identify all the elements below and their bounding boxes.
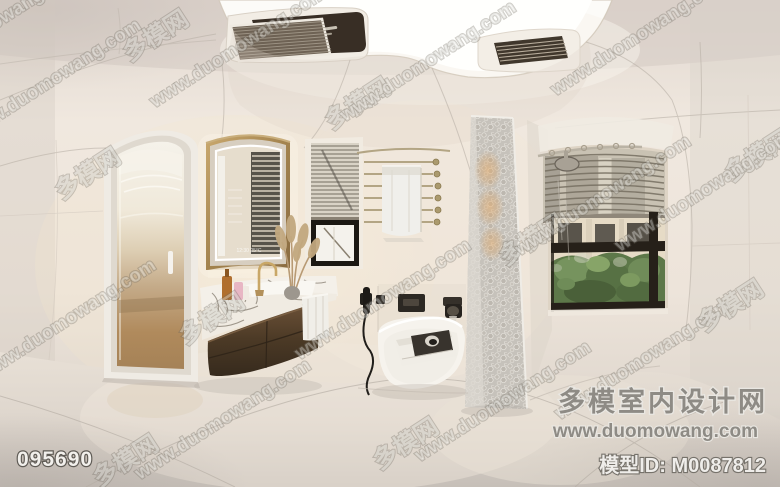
svg-text:www.duomowang.com: www.duomowang.com (552, 421, 758, 442)
svg-text:模型ID: M0087812: 模型ID: M0087812 (599, 453, 766, 477)
svg-text:多模室内设计网: 多模室内设计网 (558, 386, 768, 417)
svg-text:12:30 25°C: 12:30 25°C (236, 248, 261, 254)
svg-text:095690: 095690 (17, 448, 93, 471)
